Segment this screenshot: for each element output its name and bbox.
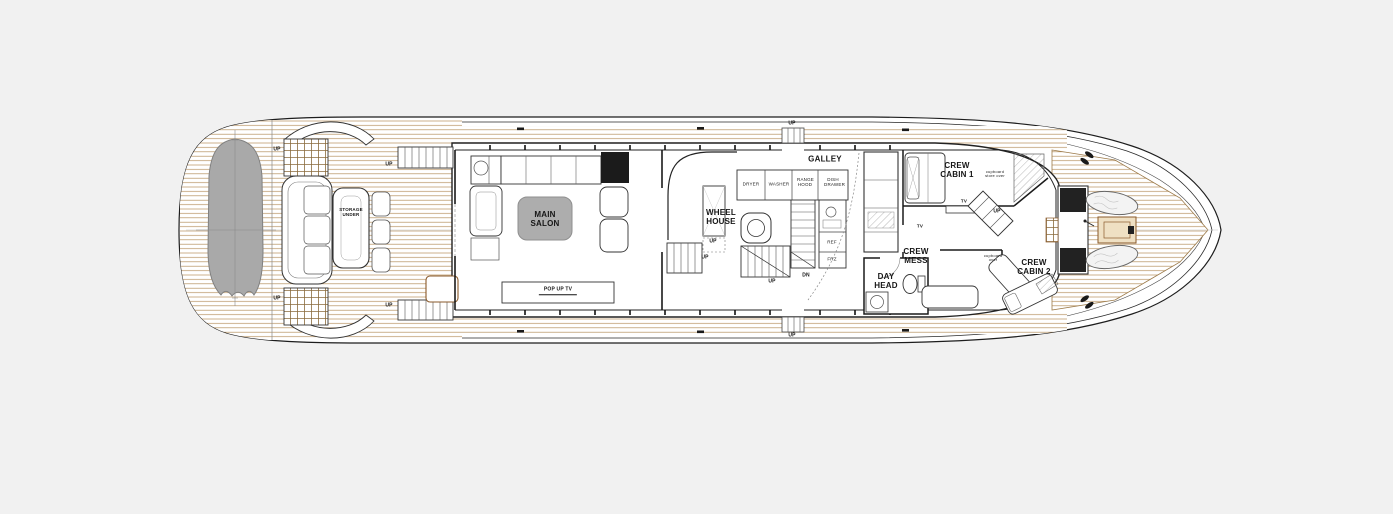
side-table [471, 238, 499, 260]
galley-appliance-column [819, 200, 846, 268]
stairs-center-up [741, 246, 790, 277]
helm-chair [741, 213, 771, 243]
deck-box [426, 276, 458, 302]
companionway-stairs-down [791, 196, 815, 268]
toilet [903, 275, 917, 294]
dark-cabinet [601, 152, 629, 183]
deck-plan-drawing [0, 0, 1393, 514]
stairs-wheelhouse-left [667, 243, 702, 273]
pop-up-tv-cabinet [502, 282, 614, 303]
armchair [600, 187, 628, 217]
pantry-unit [864, 152, 898, 252]
deck-plan-canvas: MAIN SALON WHEEL HOUSE GALLEY CREW CABIN… [0, 0, 1393, 514]
sink [871, 296, 884, 309]
flybridge-stairs-bottom [398, 300, 453, 320]
aft-dining-table [333, 188, 369, 268]
sidedeck-steps-bottom [782, 317, 804, 332]
deck-chair [372, 192, 390, 216]
day-head [864, 258, 928, 314]
salon-sofa [501, 156, 601, 184]
aft-stair-grate-bottom [284, 288, 328, 325]
deck-chair [372, 220, 390, 244]
coffee-table [518, 197, 572, 240]
armchair [600, 219, 628, 252]
deck-chair [372, 248, 390, 272]
flybridge-stairs-top [398, 147, 453, 168]
crew-cabin-1-bed [905, 153, 945, 203]
bar-cabinet [471, 156, 501, 184]
aft-stair-grate-top [284, 139, 328, 176]
aft-sofa [282, 176, 332, 284]
salon-l-sofa [470, 186, 502, 236]
galley-counter [737, 170, 848, 200]
sidedeck-steps-top [782, 128, 804, 143]
